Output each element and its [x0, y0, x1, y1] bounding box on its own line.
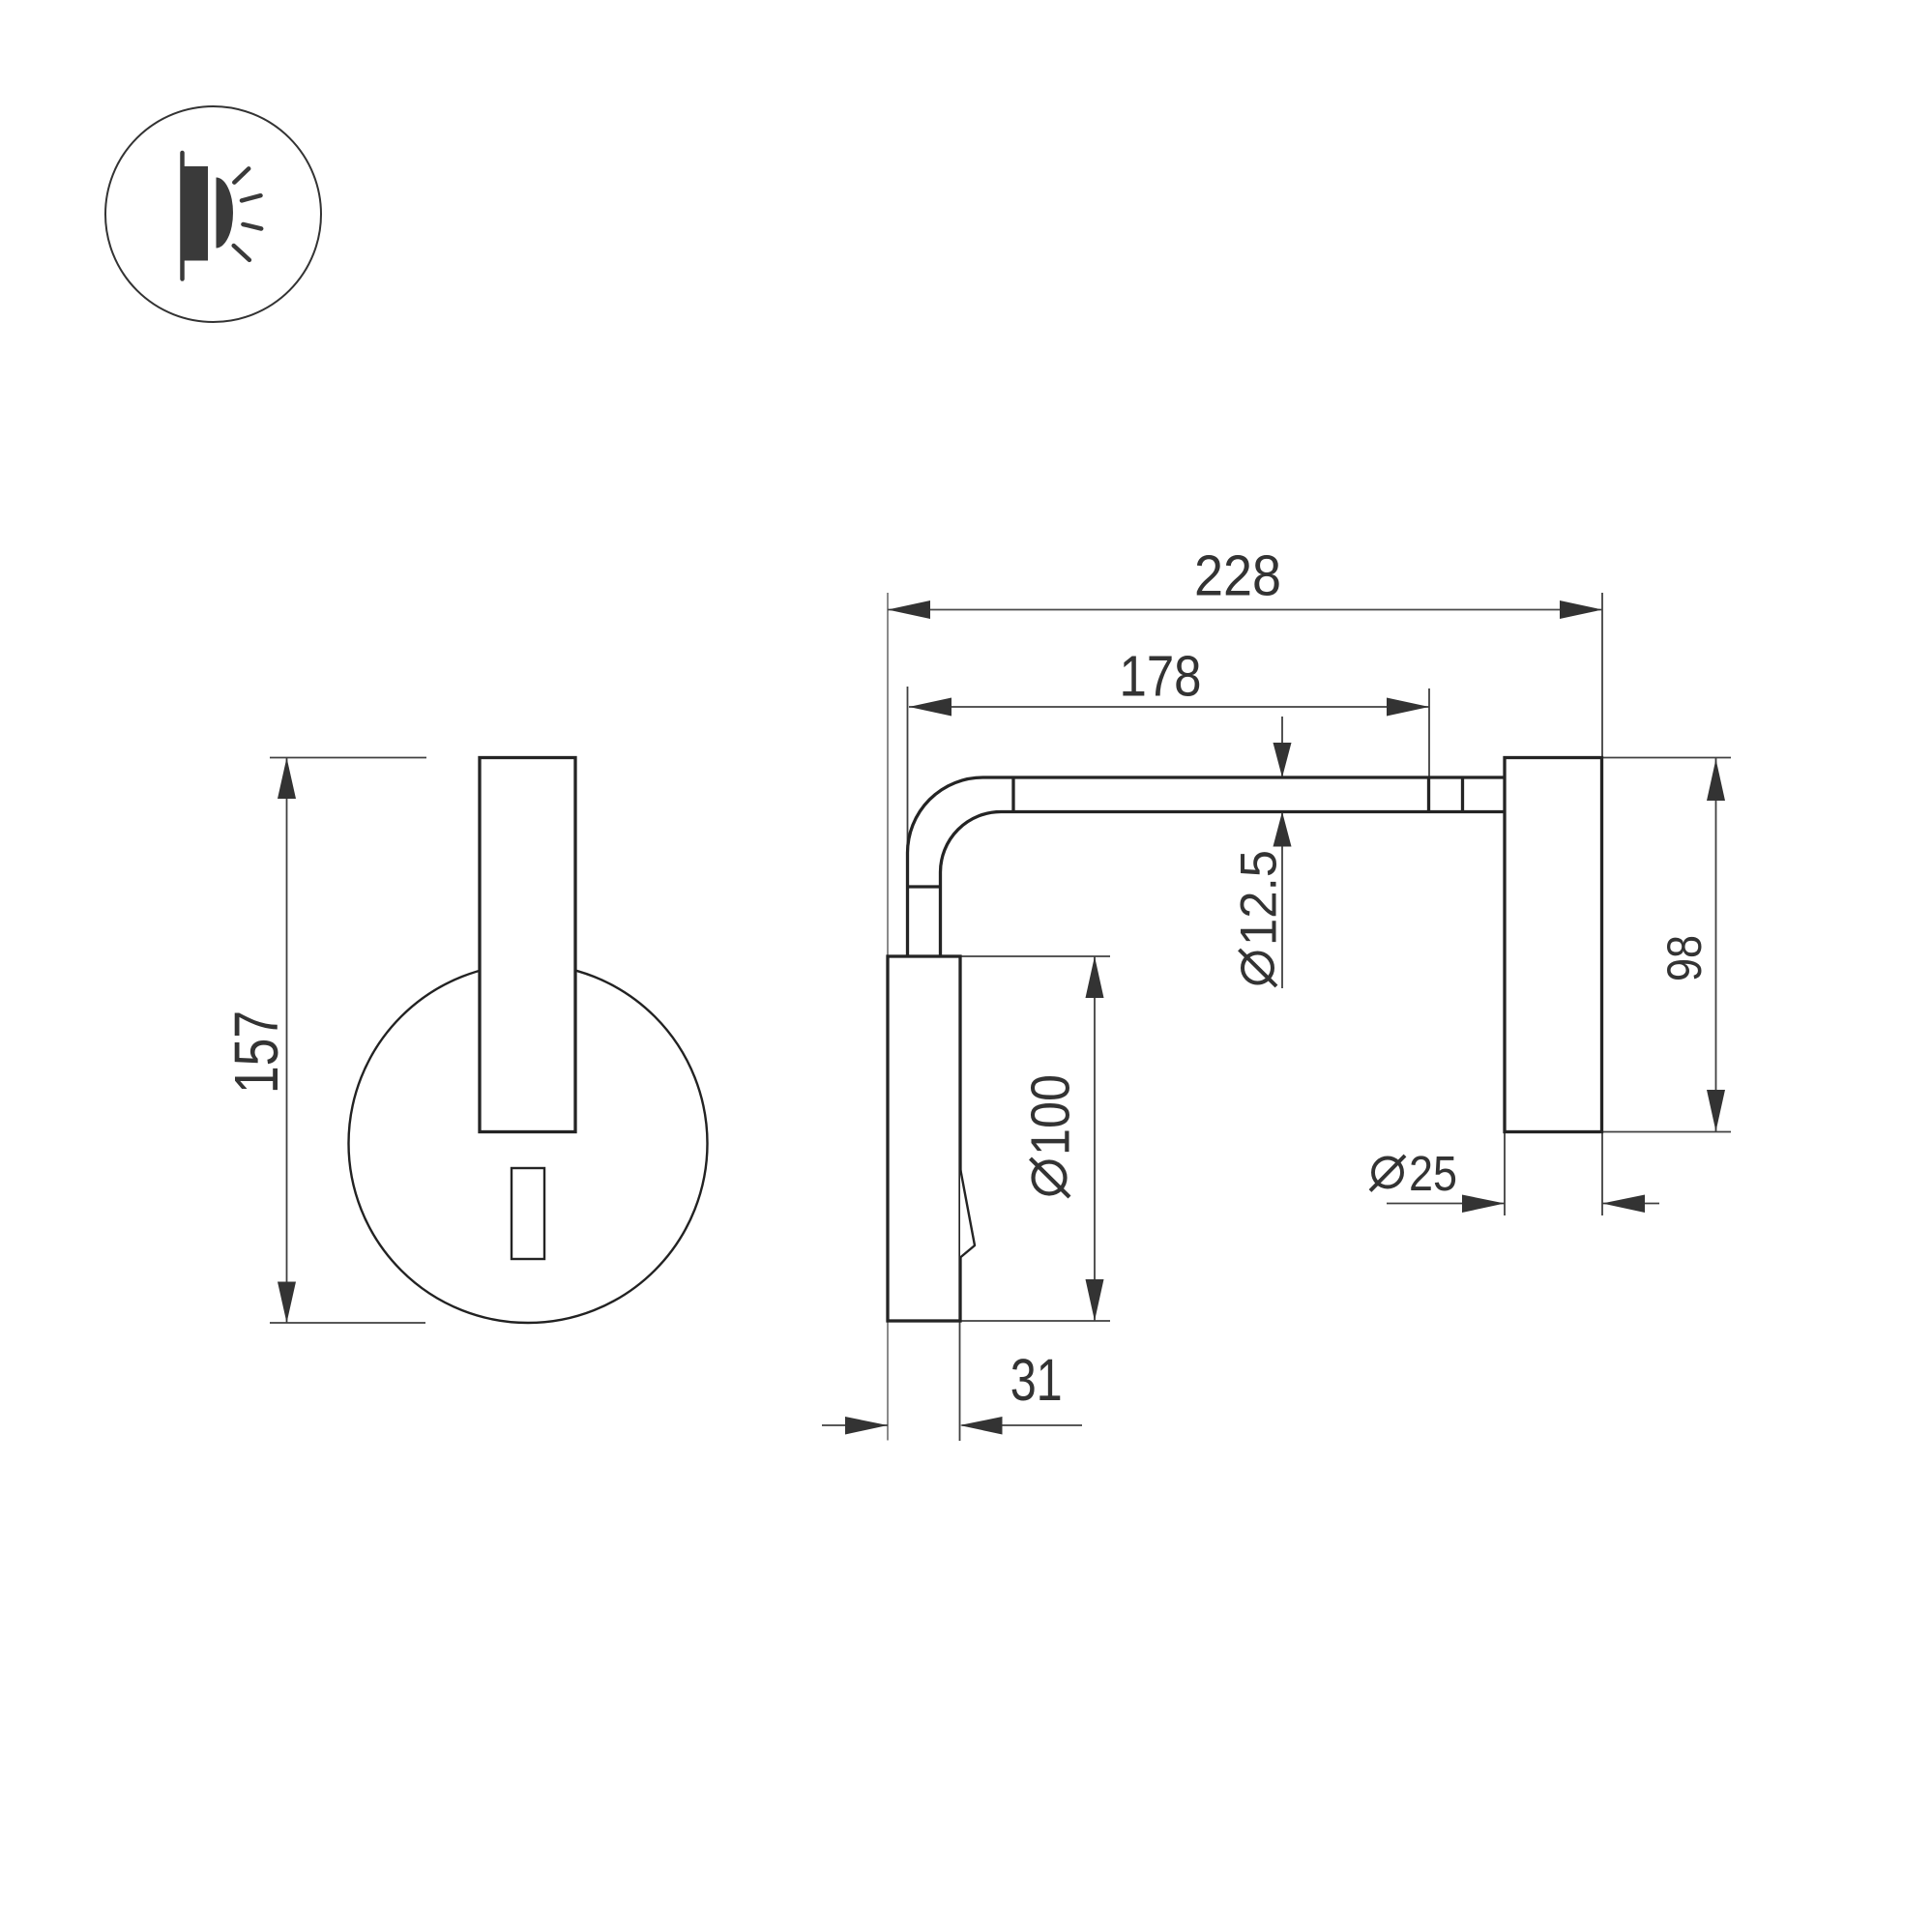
svg-text:12.5: 12.5	[1231, 850, 1288, 946]
svg-text:228: 228	[1194, 544, 1281, 608]
svg-text:98: 98	[1657, 935, 1712, 981]
svg-text:100: 100	[1020, 1074, 1082, 1156]
svg-text:178: 178	[1120, 644, 1202, 708]
svg-text:157: 157	[221, 1010, 291, 1094]
svg-text:31: 31	[1010, 1347, 1063, 1413]
svg-text:25: 25	[1409, 1146, 1457, 1201]
